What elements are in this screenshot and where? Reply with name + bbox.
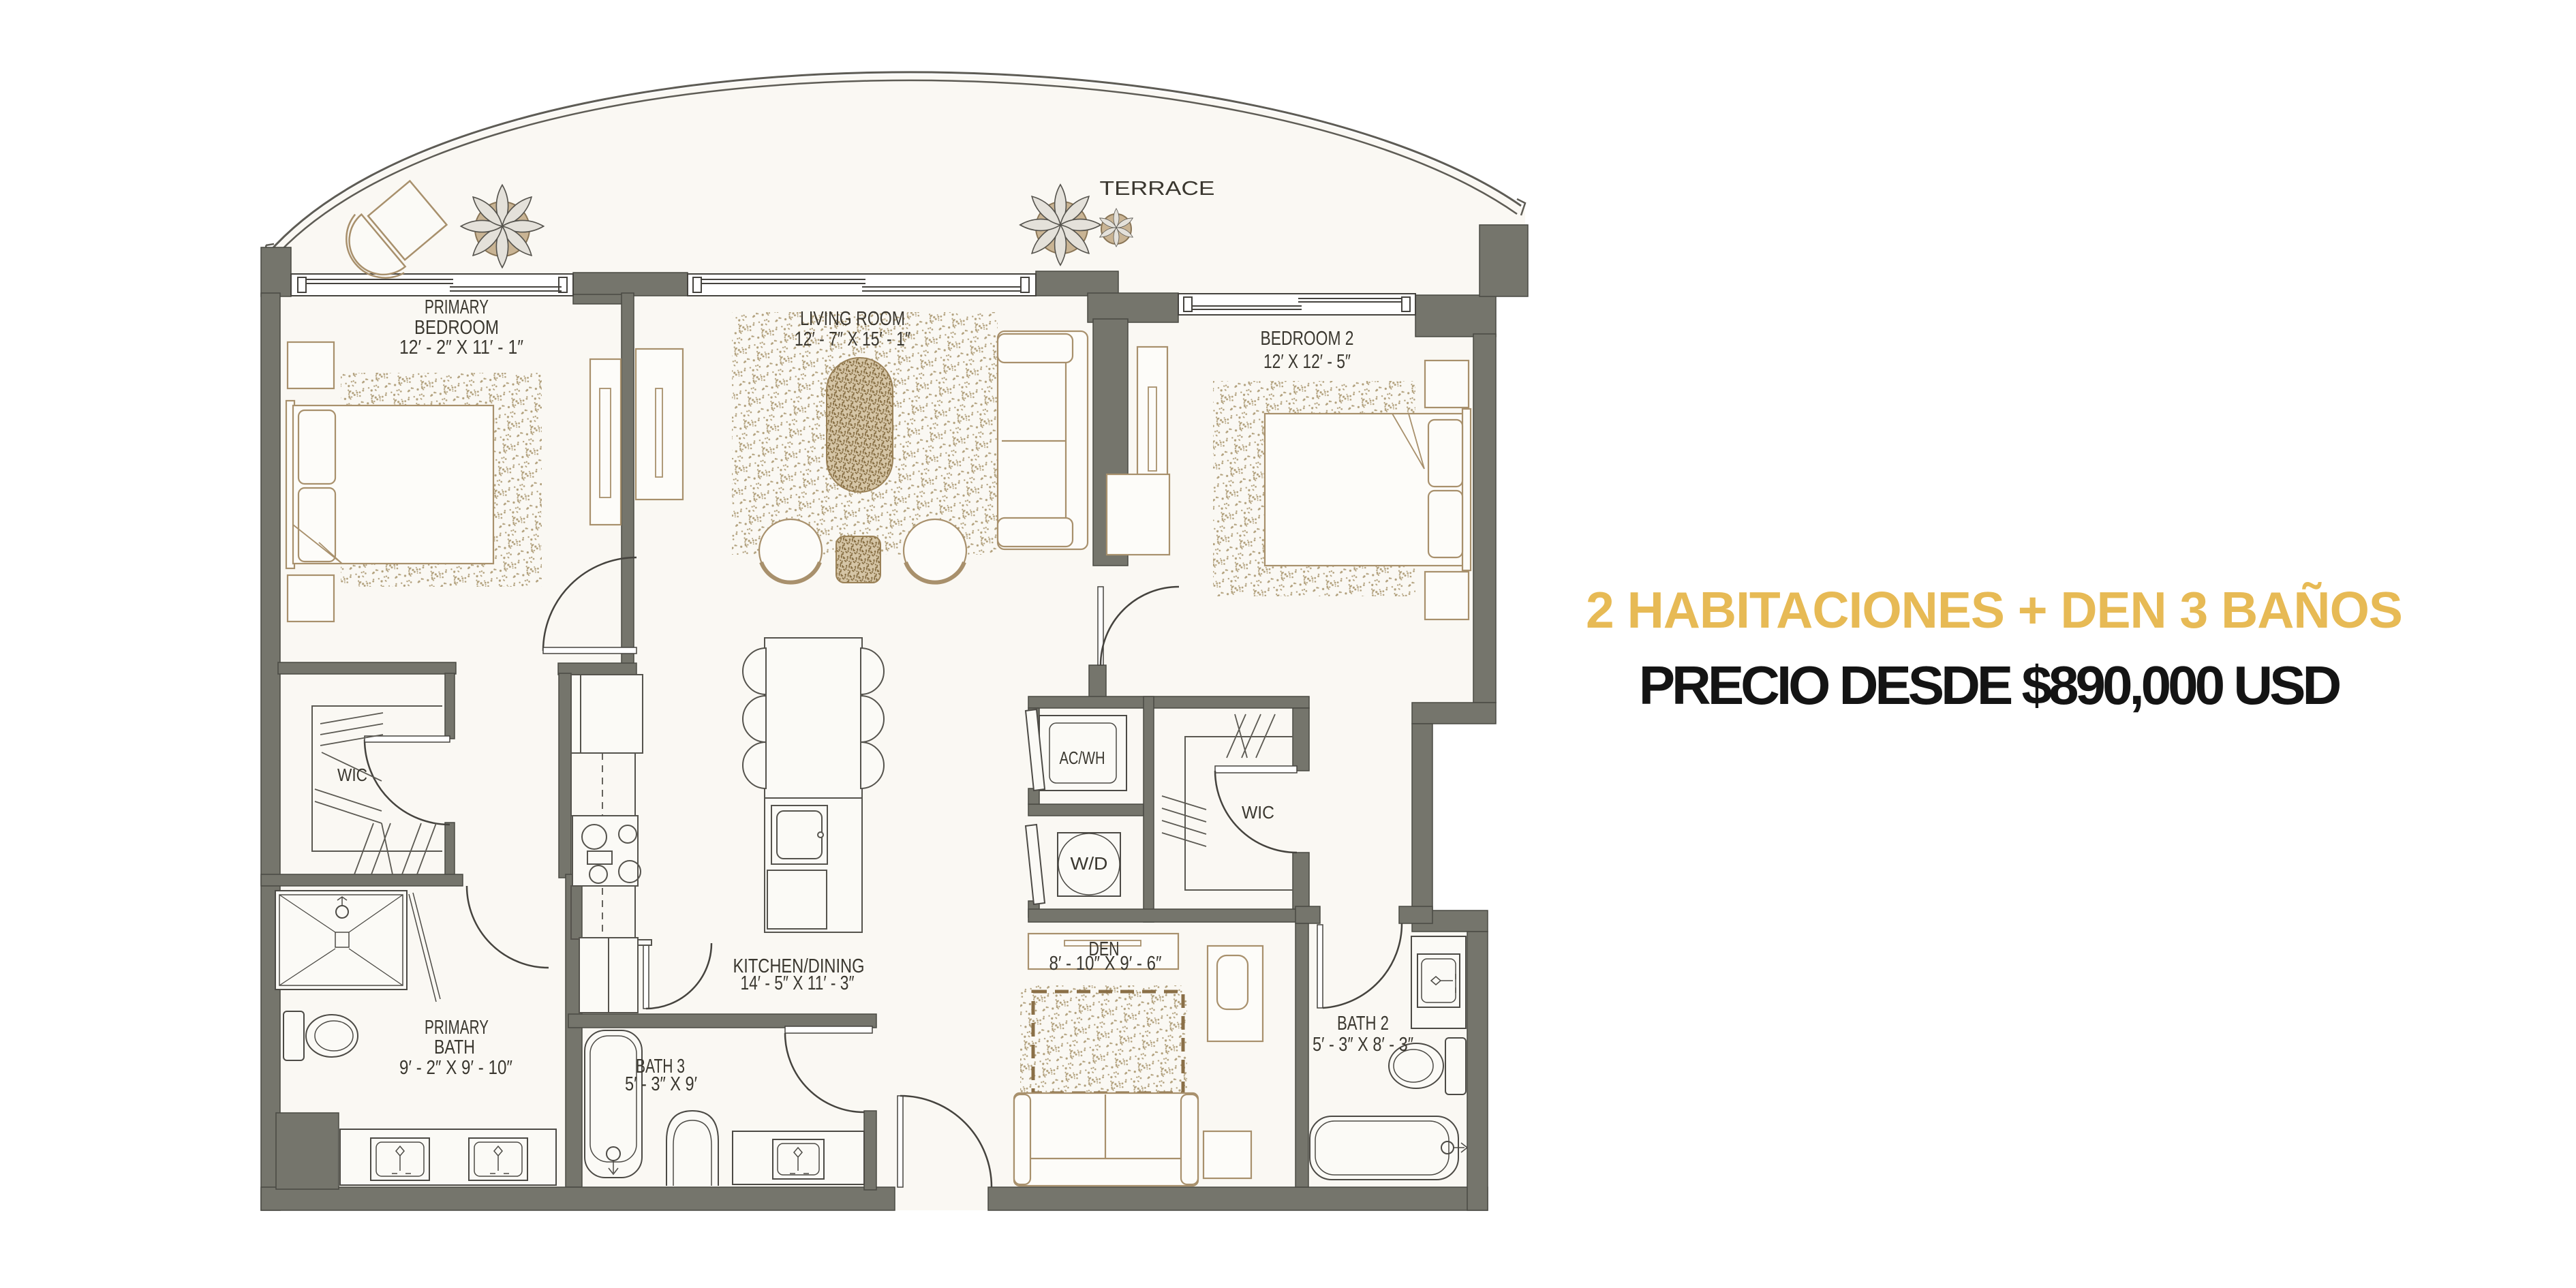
- svg-text:5′ - 3″ X 9′: 5′ - 3″ X 9′: [625, 1073, 697, 1095]
- svg-text:12′ X 12′ - 5″: 12′ X 12′ - 5″: [1263, 351, 1351, 373]
- svg-text:LIVING ROOM: LIVING ROOM: [800, 308, 905, 330]
- svg-text:8′ - 10″ X 9′ - 6″: 8′ - 10″ X 9′ - 6″: [1049, 953, 1162, 975]
- svg-text:9′ - 2″ X 9′ - 10″: 9′ - 2″ X 9′ - 10″: [399, 1057, 512, 1079]
- svg-text:PRIMARY: PRIMARY: [425, 296, 489, 318]
- svg-text:AC/WH: AC/WH: [1060, 748, 1105, 768]
- svg-text:BEDROOM 2: BEDROOM 2: [1261, 328, 1354, 350]
- svg-text:BATH: BATH: [434, 1037, 475, 1058]
- svg-text:BEDROOM: BEDROOM: [414, 317, 499, 339]
- svg-text:WIC: WIC: [337, 765, 367, 785]
- svg-text:12′ - 7″ X 15′ - 1″: 12′ - 7″ X 15′ - 1″: [795, 328, 910, 350]
- svg-text:PRIMARY: PRIMARY: [425, 1017, 489, 1039]
- svg-text:WIC: WIC: [1242, 802, 1274, 823]
- svg-text:5′ - 3″ X 8′ - 3″: 5′ - 3″ X 8′ - 3″: [1313, 1034, 1413, 1056]
- svg-text:TERRACE: TERRACE: [1100, 178, 1215, 200]
- svg-text:2 HABITACIONES + DEN 3 BAÑOS: 2 HABITACIONES + DEN 3 BAÑOS: [1586, 581, 2402, 639]
- svg-text:PRECIO DESDE $890,000 USD: PRECIO DESDE $890,000 USD: [1639, 655, 2340, 716]
- svg-text:BATH 2: BATH 2: [1337, 1013, 1389, 1034]
- svg-text:W/D: W/D: [1071, 853, 1108, 874]
- svg-text:14′ - 5″ X 11′ - 3″: 14′ - 5″ X 11′ - 3″: [741, 972, 855, 994]
- svg-text:12′ - 2″ X 11′ - 1″: 12′ - 2″ X 11′ - 1″: [399, 337, 523, 358]
